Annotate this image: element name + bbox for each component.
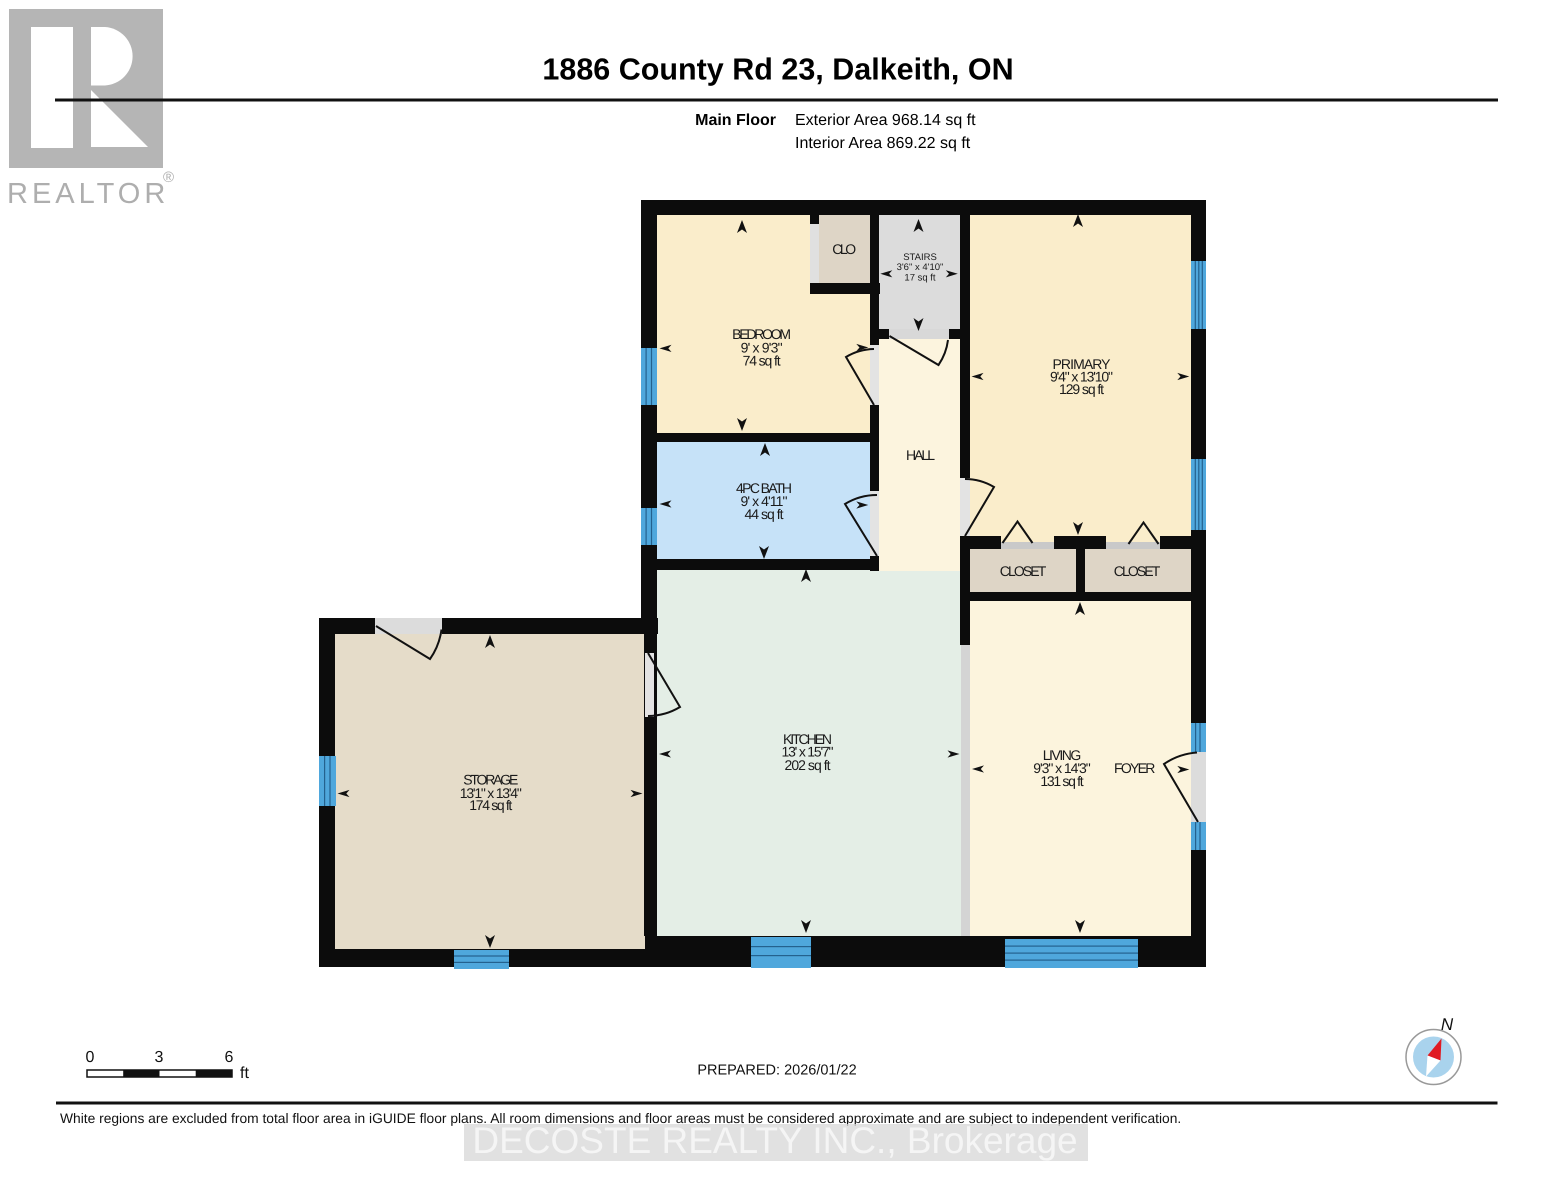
svg-text:0: 0: [86, 1049, 95, 1066]
svg-text:®: ®: [163, 169, 174, 186]
svg-text:6: 6: [225, 1049, 234, 1066]
svg-text:PREPARED: 2026/01/22: PREPARED: 2026/01/22: [697, 1063, 856, 1079]
svg-text:CLOSET: CLOSET: [1114, 563, 1161, 579]
svg-text:44 sq ft: 44 sq ft: [745, 506, 784, 522]
svg-text:Interior Area 869.22 sq ft: Interior Area 869.22 sq ft: [795, 135, 971, 152]
svg-text:131 sq ft: 131 sq ft: [1040, 773, 1083, 789]
svg-text:FOYER: FOYER: [1114, 760, 1155, 776]
svg-text:REALTOR: REALTOR: [7, 178, 169, 210]
svg-text:Main Floor: Main Floor: [695, 112, 776, 129]
svg-text:174 sq ft: 174 sq ft: [469, 797, 512, 813]
svg-text:CLOSET: CLOSET: [1000, 563, 1047, 579]
svg-text:1886 County Rd 23, Dalkeith, O: 1886 County Rd 23, Dalkeith, ON: [542, 53, 1013, 87]
svg-text:Exterior Area 968.14 sq ft: Exterior Area 968.14 sq ft: [795, 112, 976, 129]
svg-text:ft: ft: [240, 1065, 249, 1082]
svg-text:129 sq ft: 129 sq ft: [1059, 381, 1104, 397]
svg-text:3: 3: [155, 1049, 164, 1066]
svg-text:202 sq ft: 202 sq ft: [785, 757, 831, 773]
svg-text:HALL: HALL: [906, 447, 935, 463]
svg-text:74 sq ft: 74 sq ft: [743, 352, 781, 368]
svg-text:DECOSTE REALTY INC., Brokerage: DECOSTE REALTY INC., Brokerage: [472, 1120, 1077, 1161]
svg-text:CLO: CLO: [832, 241, 856, 257]
svg-text:17 sq ft: 17 sq ft: [904, 273, 936, 284]
svg-text:N: N: [1441, 1015, 1454, 1034]
